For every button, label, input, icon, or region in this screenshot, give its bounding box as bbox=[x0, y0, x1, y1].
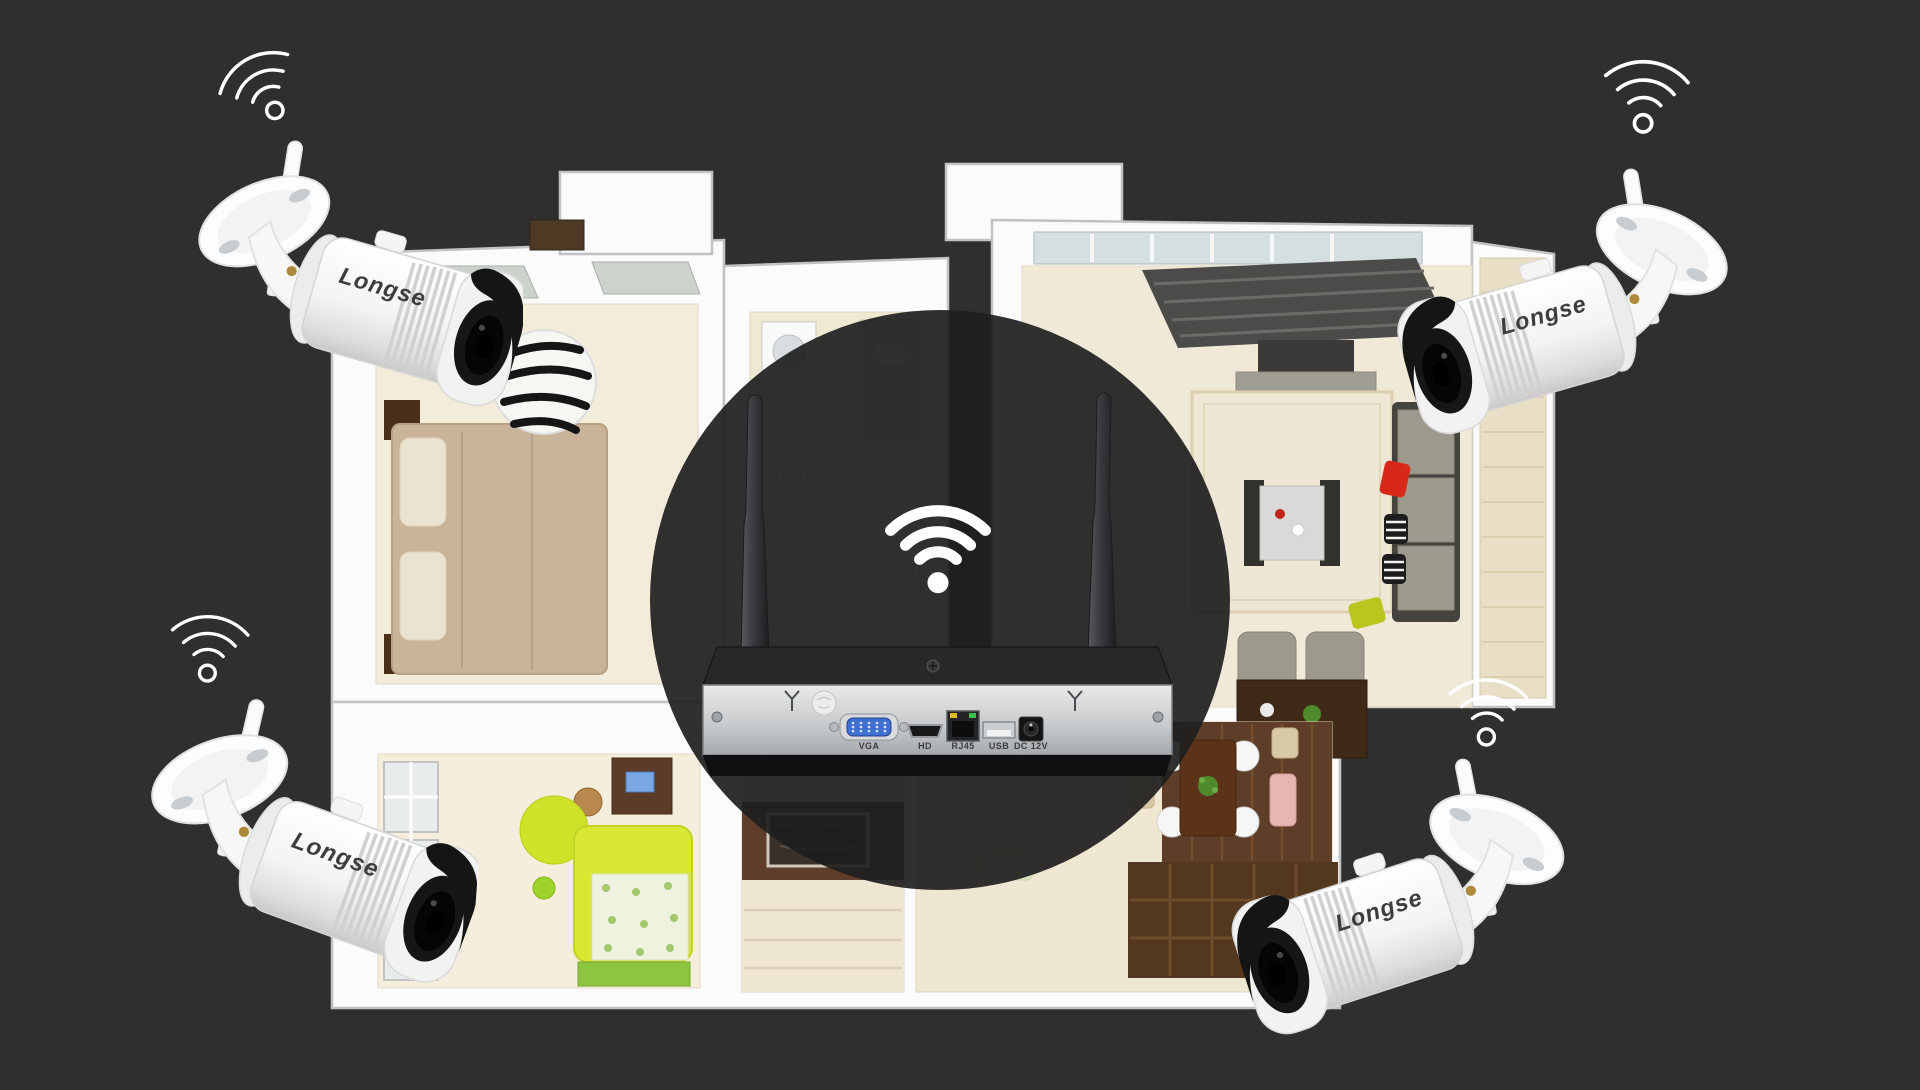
usb-label: USB bbox=[989, 741, 1009, 751]
camera-bottom-left: Longse bbox=[118, 678, 489, 992]
rj45-port bbox=[947, 711, 979, 741]
wifi-icon-bottom-left bbox=[157, 594, 262, 692]
nvr-antenna-left bbox=[739, 395, 771, 661]
hd-label: HD bbox=[918, 741, 932, 751]
dc12v-label: DC 12V bbox=[1014, 741, 1048, 751]
wifi-icon-top-right bbox=[1588, 35, 1704, 144]
camera-bottom-right: Longse bbox=[1221, 742, 1591, 1042]
scene: VGA HD RJ45 USB DC 12V Longse Longse bbox=[0, 0, 1920, 1090]
wifi-icon-center bbox=[876, 486, 1000, 600]
nvr-antenna-right bbox=[1086, 393, 1118, 661]
sticker bbox=[812, 691, 836, 715]
rj45-label: RJ45 bbox=[951, 741, 974, 751]
camera-top-right: Longse bbox=[1393, 156, 1748, 440]
vga-port bbox=[830, 714, 909, 740]
vga-label: VGA bbox=[859, 741, 880, 751]
hdmi-port bbox=[908, 725, 942, 737]
nvr-panel bbox=[703, 685, 1172, 755]
usb-port bbox=[983, 722, 1015, 738]
dc-power-port bbox=[1019, 717, 1043, 741]
camera-top-left: Longse bbox=[178, 128, 523, 412]
nvr-bottom bbox=[703, 755, 1172, 776]
wifi-icon-bottom-right bbox=[1436, 657, 1541, 754]
